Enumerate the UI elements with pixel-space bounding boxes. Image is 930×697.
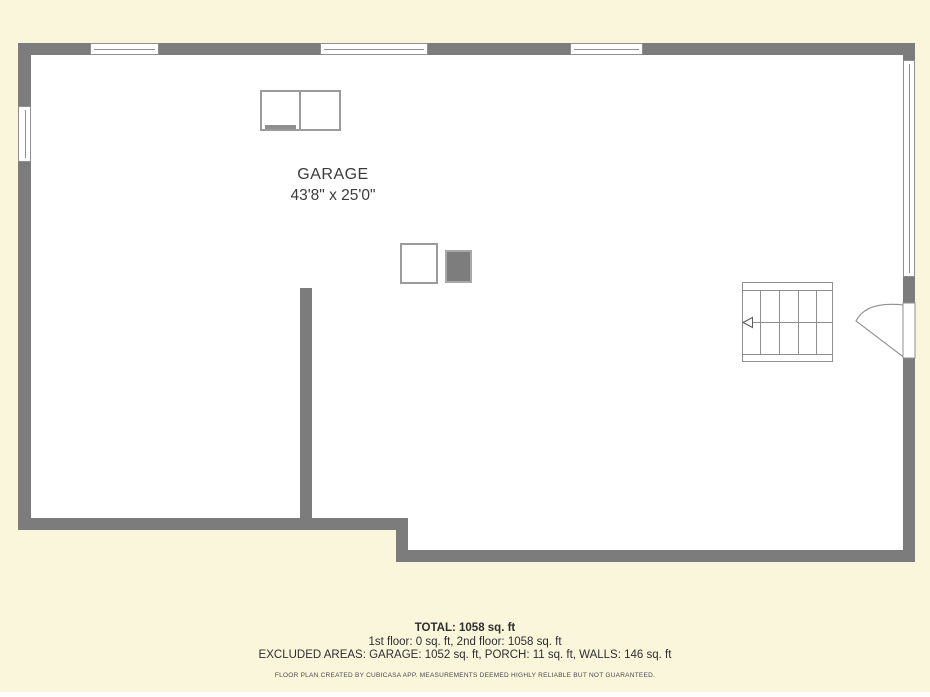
summary-excluded-areas: EXCLUDED AREAS: GARAGE: 1052 sq. ft, POR… <box>0 649 930 663</box>
staircase <box>743 283 833 362</box>
disclaimer-text: FLOOR PLAN CREATED BY CUBICASA APP. MEAS… <box>0 672 930 679</box>
plan-symbols-layer <box>0 0 930 697</box>
room-dimensions: 43'8" x 25'0" <box>233 185 433 206</box>
summary-total: TOTAL: 1058 sq. ft <box>0 622 930 636</box>
area-summary: TOTAL: 1058 sq. ft 1st floor: 0 sq. ft, … <box>0 622 930 679</box>
door-right-wall <box>856 303 915 358</box>
floor-plan-canvas: GARAGE 43'8" x 25'0" TOTAL: 1058 sq. ft … <box>0 0 930 697</box>
room-label-block: GARAGE 43'8" x 25'0" <box>233 165 433 206</box>
room-name: GARAGE <box>233 165 433 185</box>
door-opening <box>903 303 915 358</box>
door-swing-arc <box>856 304 904 357</box>
bottom-edge-strip <box>0 692 930 697</box>
summary-floors: 1st floor: 0 sq. ft, 2nd floor: 1058 sq.… <box>0 636 930 650</box>
